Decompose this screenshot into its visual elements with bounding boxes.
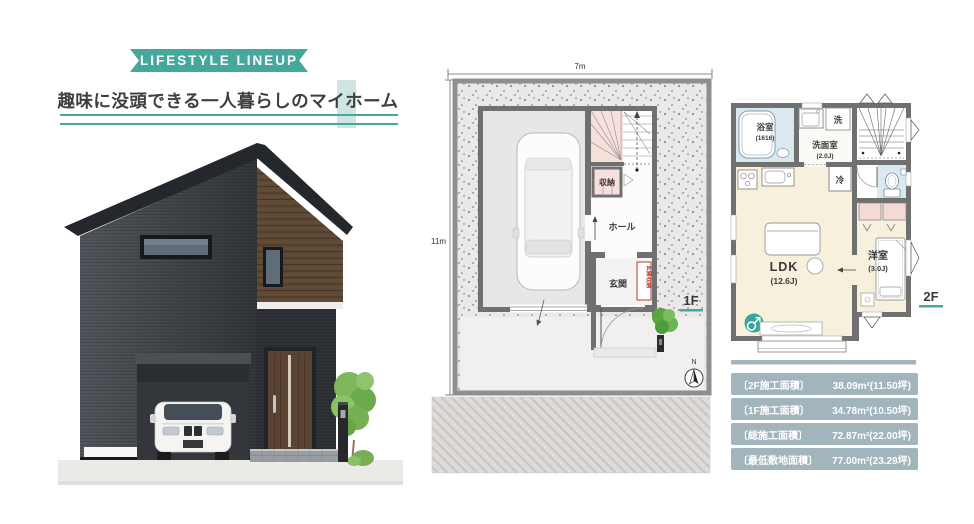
area-table: 〔2F施工面積〕 38.09m²(11.50坪) 〔1F施工面積〕 34.78m… [731, 373, 918, 470]
floor-plan-2f: 浴室 (1616) 洗 洗面室 (2.0J) [726, 90, 974, 370]
page-title: 趣味に没頭できる一人暮らしのマイホーム [56, 88, 400, 113]
ribbon-label: LIFESTYLE LINEUP [140, 53, 298, 68]
front-door [264, 347, 316, 451]
house-illustration [58, 135, 403, 485]
svg-text:(3.0J): (3.0J) [868, 264, 888, 273]
road [432, 397, 710, 473]
round-table-icon [807, 258, 823, 274]
floor-plan-1f: 7m 11m [424, 12, 724, 490]
area-row-2f: 〔2F施工面積〕 38.09m²(11.50坪) [731, 373, 918, 395]
entrance-label: 玄関 [609, 278, 627, 289]
svg-text:(12.6J): (12.6J) [771, 276, 798, 286]
dim-height-label: 11m [431, 237, 446, 246]
table-divider [731, 360, 916, 365]
balcony [758, 341, 846, 352]
title-underline [60, 114, 398, 125]
western-room-label: 洋室 [868, 249, 888, 262]
low-table-icon [760, 322, 822, 335]
floor-label-1f: 1F [683, 293, 698, 308]
entrance-post [338, 402, 348, 462]
area-row-1f: 〔1F施工面積〕 34.78m²(10.50坪) [731, 398, 918, 420]
plan-tree [652, 308, 678, 334]
floor-label-2f: 2F [923, 289, 938, 304]
dim-width-label: 7m [574, 62, 585, 71]
fridge-label: 冷 [836, 175, 845, 185]
storage-label: 収納 [599, 177, 615, 187]
nightstand-icon [861, 293, 874, 306]
garage-car [150, 402, 236, 460]
ldk-label: LDK [770, 260, 799, 274]
svg-text:(2.0J): (2.0J) [817, 153, 834, 160]
svg-text:N: N [691, 359, 696, 366]
washer-icon [799, 109, 823, 128]
hall-label: ホール [608, 222, 635, 232]
washroom-label: 洗面室 [812, 140, 838, 150]
horizontal-window [140, 235, 212, 259]
entrance-storage-label: 玄関収納 [645, 265, 653, 288]
lifestyle-lineup-page: LIFESTYLE LINEUP 趣味に没頭できる一人暮らしのマイホーム [0, 0, 974, 524]
area-row-total: 〔総施工面積〕 72.87m²(22.00坪) [731, 423, 918, 445]
stove-icon [738, 170, 757, 189]
plan-post [657, 335, 664, 352]
vertical-window [263, 247, 283, 287]
kitchen-sink-icon [762, 168, 794, 186]
svg-text:(1616): (1616) [756, 135, 775, 142]
area-row-min-land: 〔最低敷地面積〕 77.00m²(23.29坪) [731, 448, 918, 470]
sofa-icon [765, 223, 820, 255]
laundry-label: 洗 [834, 115, 843, 125]
lineup-ribbon: LIFESTYLE LINEUP [130, 49, 308, 72]
bath-label: 浴室 [756, 122, 774, 132]
car-top-view [513, 133, 584, 290]
entrance-step [594, 348, 656, 357]
stone-wall [250, 449, 338, 462]
